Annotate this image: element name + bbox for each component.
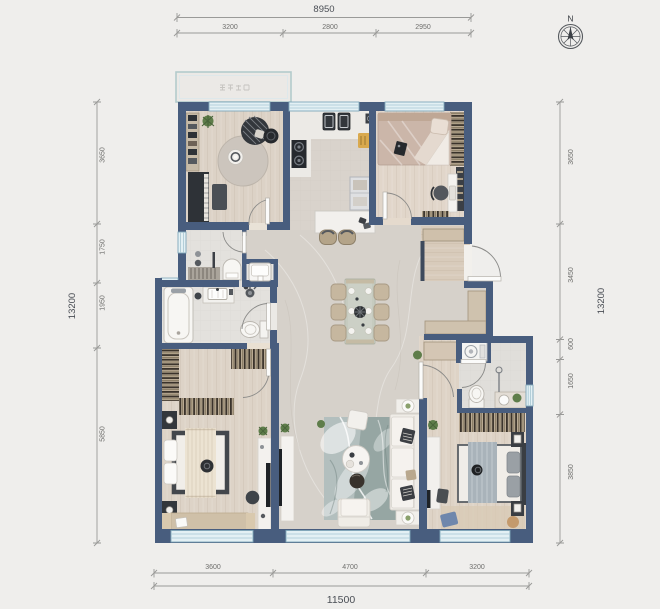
svg-text:1750: 1750 <box>100 239 107 255</box>
svg-text:3450: 3450 <box>568 267 575 283</box>
svg-text:1650: 1650 <box>568 373 575 389</box>
svg-text:8950: 8950 <box>313 4 334 15</box>
svg-text:5850: 5850 <box>100 426 107 442</box>
svg-text:3200: 3200 <box>469 564 485 571</box>
svg-text:11500: 11500 <box>327 594 356 606</box>
svg-text:13200: 13200 <box>67 293 78 319</box>
svg-text:3200: 3200 <box>222 24 238 31</box>
svg-text:3650: 3650 <box>100 147 107 163</box>
svg-text:2800: 2800 <box>322 24 338 31</box>
svg-text:3850: 3850 <box>568 464 575 480</box>
svg-text:600: 600 <box>568 338 575 350</box>
svg-text:3650: 3650 <box>568 149 575 165</box>
svg-text:N: N <box>567 14 573 24</box>
svg-text:1950: 1950 <box>100 295 107 311</box>
svg-text:3600: 3600 <box>205 564 221 571</box>
svg-text:13200: 13200 <box>596 288 607 314</box>
svg-text:4700: 4700 <box>342 564 358 571</box>
svg-text:2950: 2950 <box>415 24 431 31</box>
